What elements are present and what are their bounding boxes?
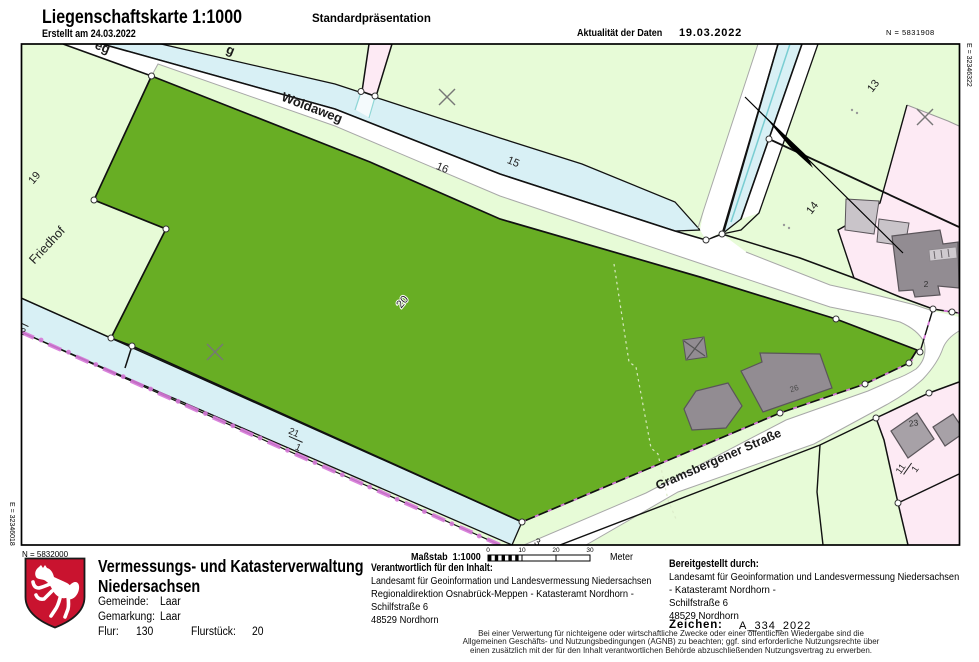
svg-text:0: 0 [486,547,490,554]
svg-text:23: 23 [908,417,919,428]
svg-text:30: 30 [586,547,594,554]
svg-text:2: 2 [924,279,929,289]
svg-text:20: 20 [552,547,560,554]
svg-text:10: 10 [518,547,526,554]
